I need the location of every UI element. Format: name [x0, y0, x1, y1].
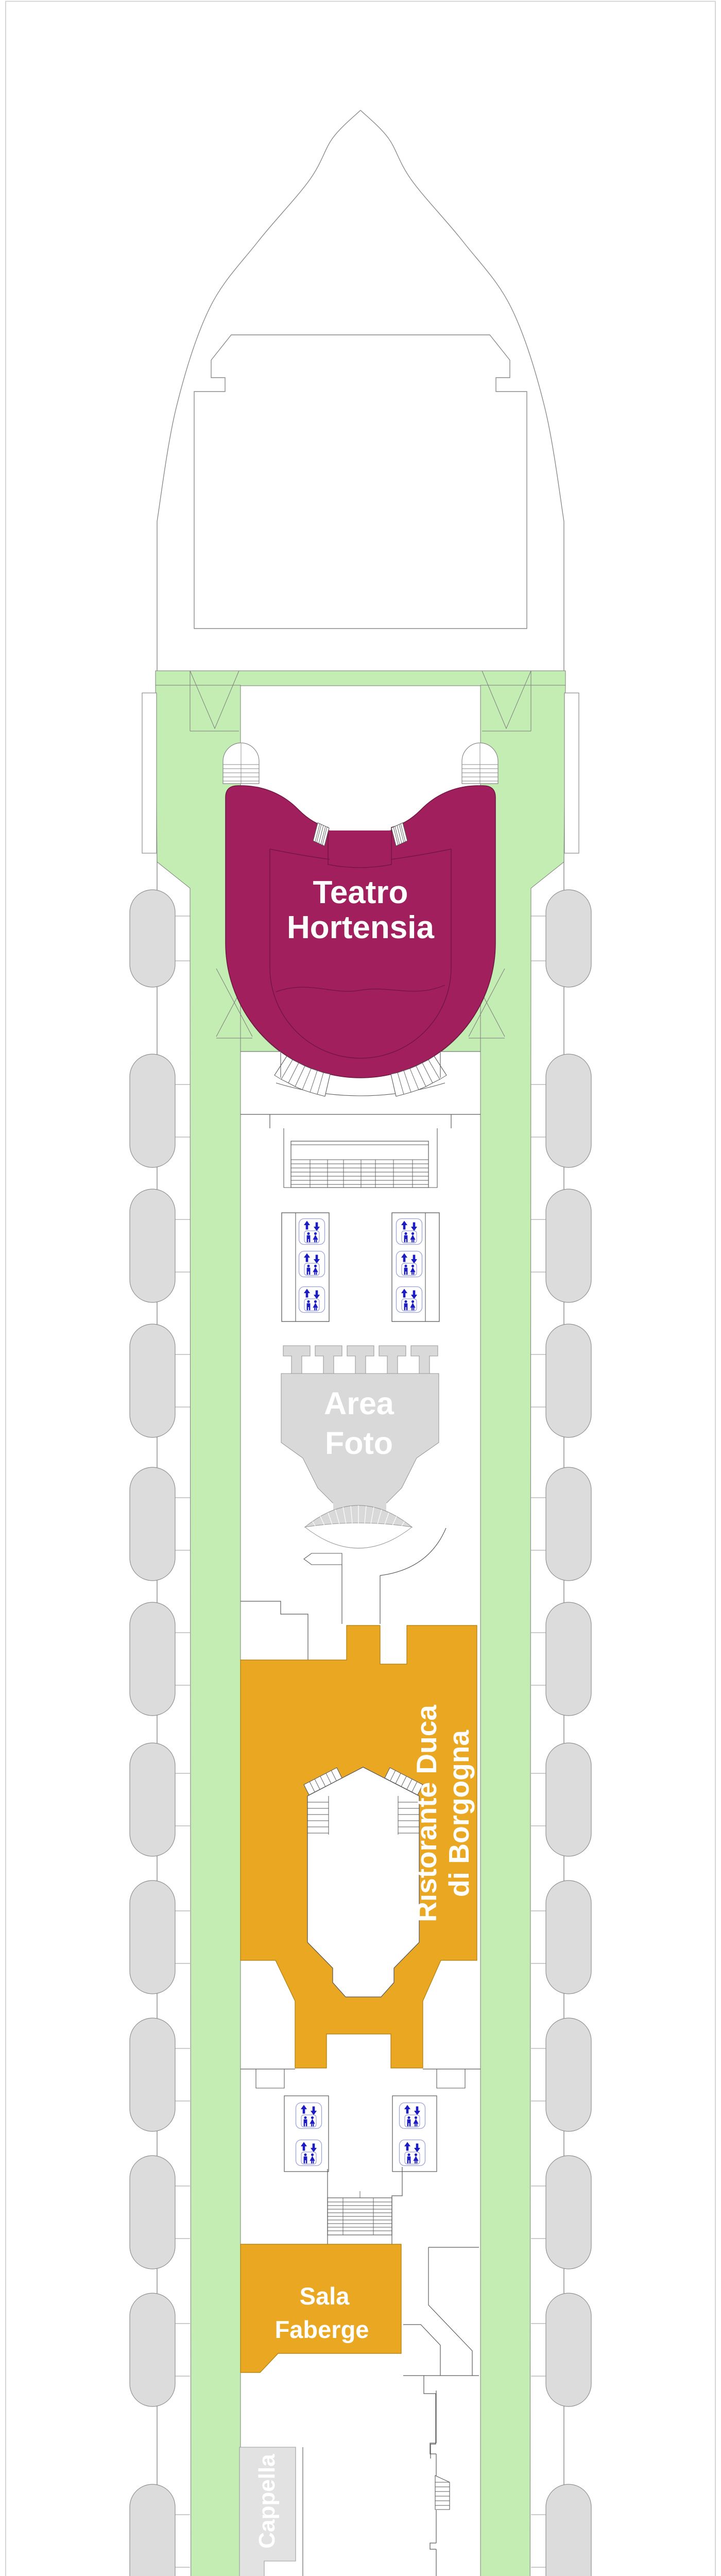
svg-text:Area: Area: [324, 1386, 394, 1421]
svg-text:Cappella: Cappella: [254, 2454, 280, 2549]
svg-text:Faberge: Faberge: [275, 2316, 369, 2343]
svg-text:Hortensia: Hortensia: [287, 910, 434, 945]
svg-text:Ristorante Duca: Ristorante Duca: [410, 1705, 442, 1922]
svg-text:di Borgogna: di Borgogna: [443, 1730, 475, 1897]
svg-text:Sala: Sala: [300, 2282, 350, 2310]
svg-text:Foto: Foto: [325, 1426, 393, 1461]
svg-text:Teatro: Teatro: [313, 875, 408, 910]
